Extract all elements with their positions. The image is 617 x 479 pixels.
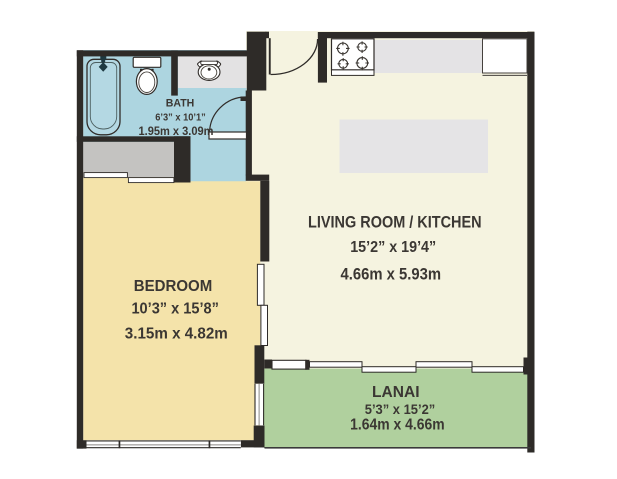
svg-text:LANAI: LANAI (372, 384, 420, 401)
svg-text:10’3” x 15’8”: 10’3” x 15’8” (131, 301, 219, 318)
svg-text:1.95m x 3.09m: 1.95m x 3.09m (139, 124, 214, 138)
svg-text:3.15m x 4.82m: 3.15m x 4.82m (125, 326, 228, 343)
svg-text:BEDROOM: BEDROOM (134, 278, 213, 295)
svg-text:15’2” x 19’4”: 15’2” x 19’4” (350, 239, 436, 256)
svg-text:5’3” x 15’2”: 5’3” x 15’2” (365, 401, 436, 417)
svg-text:6’3” x 10’1”: 6’3” x 10’1” (155, 111, 206, 123)
svg-text:1.64m x 4.66m: 1.64m x 4.66m (350, 417, 445, 434)
svg-text:LIVING ROOM / KITCHEN: LIVING ROOM / KITCHEN (308, 212, 482, 231)
svg-text:4.66m x 5.93m: 4.66m x 5.93m (341, 266, 442, 284)
svg-text:BATH: BATH (166, 98, 195, 110)
